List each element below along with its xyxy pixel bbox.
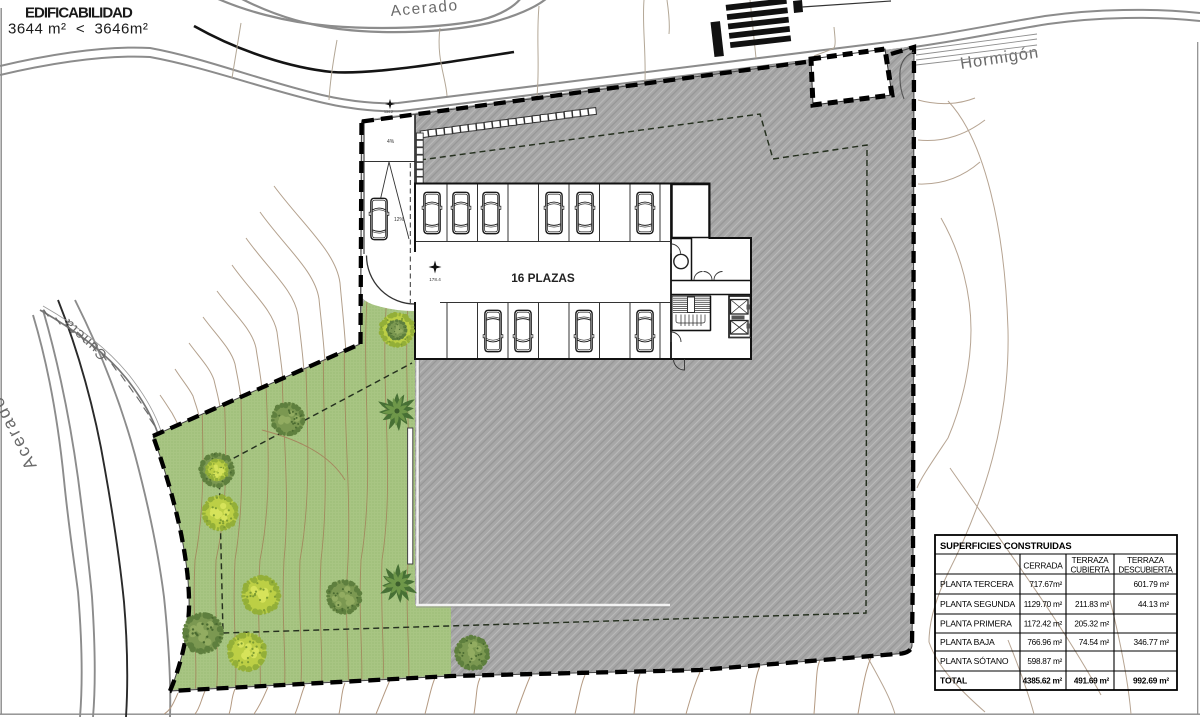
svg-text:211.83 m²: 211.83 m² (1075, 600, 1110, 609)
svg-text:TERRAZA: TERRAZA (1072, 556, 1110, 565)
svg-text:1172.42 m²: 1172.42 m² (1024, 620, 1063, 629)
svg-text:717.67m²: 717.67m² (1029, 580, 1062, 589)
svg-text:PLANTA BAJA: PLANTA BAJA (940, 637, 995, 647)
svg-text:PLANTA TERCERA: PLANTA TERCERA (940, 579, 1014, 589)
svg-text:SUPERFICIES CONSTRUIDAS: SUPERFICIES CONSTRUIDAS (940, 540, 1072, 551)
svg-text:4%: 4% (387, 139, 395, 145)
svg-text:44.13 m²: 44.13 m² (1138, 599, 1170, 609)
svg-text:TOTAL: TOTAL (940, 676, 967, 686)
svg-text:766.96 m²: 766.96 m² (1027, 638, 1062, 647)
svg-text:PLANTA PRIMERA: PLANTA PRIMERA (940, 619, 1012, 629)
svg-text:PLANTA SEGUNDA: PLANTA SEGUNDA (940, 599, 1016, 609)
svg-text:205.32 m²: 205.32 m² (1074, 620, 1109, 629)
svg-text:DESCUBIERTA: DESCUBIERTA (1118, 566, 1173, 575)
svg-text:598.87 m²: 598.87 m² (1027, 657, 1062, 666)
svg-text:491.69 m²: 491.69 m² (1074, 677, 1110, 686)
svg-text:346.77 m²: 346.77 m² (1133, 637, 1169, 647)
svg-text:992.69 m²: 992.69 m² (1133, 676, 1169, 686)
svg-text:178.4: 178.4 (429, 277, 441, 282)
svg-text:16 PLAZAS: 16 PLAZAS (511, 271, 575, 285)
svg-text:4385.62 m²: 4385.62 m² (1023, 677, 1063, 686)
svg-text:1129.70 m²: 1129.70 m² (1024, 600, 1063, 609)
svg-text:EDIFICABILIDAD: EDIFICABILIDAD (25, 5, 133, 22)
svg-text:CUBIERTA: CUBIERTA (1070, 566, 1110, 575)
svg-text:TERRAZA: TERRAZA (1127, 556, 1165, 565)
svg-text:601.79 m²: 601.79 m² (1133, 579, 1169, 589)
svg-text:3644 m² < 3646m²: 3644 m² < 3646m² (8, 21, 148, 38)
svg-text:12%: 12% (394, 217, 405, 223)
svg-text:CERRADA: CERRADA (1023, 561, 1063, 571)
svg-text:74.54 m²: 74.54 m² (1079, 638, 1110, 647)
svg-text:PLANTA SÓTANO: PLANTA SÓTANO (940, 656, 1009, 666)
svg-text:134.2: 134.2 (384, 110, 393, 114)
